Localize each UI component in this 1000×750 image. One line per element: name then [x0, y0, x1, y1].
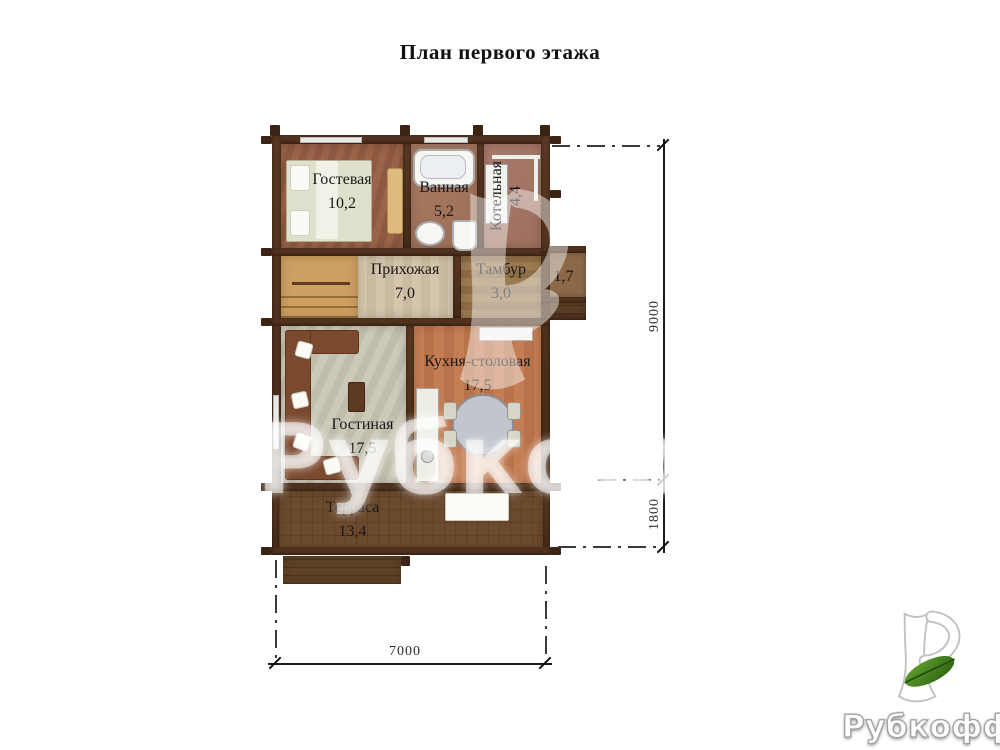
extension-line [552, 145, 660, 147]
extension-line [598, 479, 660, 481]
room-area: 5,2 [411, 202, 477, 221]
room-area: 1,7 [541, 267, 586, 286]
dining-table [452, 394, 514, 456]
floor-plan-page: План первого этажа [0, 0, 1000, 750]
room-name: Тамбур [461, 260, 541, 279]
label-guest: Гостевая 10,2 [281, 170, 403, 213]
company-logo: Рубкофф [842, 610, 1000, 745]
dimension-line-horizontal [268, 663, 552, 665]
window [300, 137, 362, 143]
room-area: 17,5 [414, 376, 541, 395]
dimension-value-1800: 1800 [647, 492, 663, 536]
wall-porch-top [541, 246, 586, 253]
room-name: Гостиная [300, 415, 425, 434]
page-title: План первого этажа [0, 40, 1000, 65]
stair-rail [292, 282, 350, 285]
wall-bath-boiler [477, 144, 484, 248]
dimension-value-9000: 9000 [647, 294, 663, 338]
room-name: Прихожая [350, 260, 460, 279]
room-area: 7,0 [350, 284, 460, 303]
room-name: Кухня-столовая [414, 352, 541, 371]
company-logo-text: Рубкофф [842, 709, 1000, 745]
label-living: Гостиная 17,5 [300, 415, 425, 458]
log-end [540, 125, 550, 136]
label-porch: 1,7 [541, 267, 586, 286]
pillow [290, 210, 310, 236]
dimension-value-7000: 7000 [380, 644, 430, 660]
dimension-line-vertical [663, 139, 665, 553]
room-name: Ванная [411, 178, 477, 197]
wall-right [541, 135, 550, 490]
chair [507, 402, 521, 420]
room-area: 13,4 [290, 522, 415, 541]
label-boiler: Котельная 4,4 [486, 151, 526, 241]
terrace-bench [445, 493, 509, 521]
log-end [261, 483, 272, 491]
label-hallway: Прихожая 7,0 [350, 260, 460, 303]
chair [507, 430, 521, 448]
room-area: 4,4 [506, 186, 525, 206]
pipe [534, 155, 538, 201]
wall-terrace-right [543, 491, 550, 549]
room-area: 17,5 [300, 439, 425, 458]
wall-terrace-bottom [272, 547, 550, 555]
room-name: Терраса [290, 498, 415, 517]
wall-living-kitchen [406, 326, 414, 483]
label-kitchen: Кухня-столовая 17,5 [414, 352, 541, 395]
log-end [550, 547, 561, 555]
wall-porch-mid [541, 297, 586, 303]
sink [415, 221, 445, 246]
toilet [452, 220, 477, 251]
room-name: Гостевая [281, 170, 403, 189]
extension-line [275, 560, 277, 660]
extension-line [545, 566, 547, 660]
log-end [550, 136, 561, 144]
door-mat [479, 327, 533, 341]
window [424, 137, 468, 143]
bathtub-basin [420, 155, 466, 179]
sofa-pillow [291, 391, 310, 410]
wall-guest-bath [403, 144, 411, 248]
wall-porch-bottom [541, 314, 586, 320]
log-end [261, 318, 272, 326]
chair [443, 430, 457, 448]
log-end [261, 136, 272, 144]
label-terrace: Терраса 13,4 [290, 498, 415, 541]
window [273, 395, 279, 449]
label-bathroom: Ванная 5,2 [411, 178, 477, 221]
log-end [400, 125, 410, 136]
stair-treads [281, 288, 358, 318]
terrace-steps [283, 556, 401, 584]
wall-terrace-left [272, 491, 279, 549]
log-end [261, 547, 272, 555]
chair [443, 402, 457, 420]
log-end [261, 248, 272, 256]
log-end [270, 125, 280, 136]
wall-mid-upper [272, 248, 550, 256]
room-area: 3,0 [461, 284, 541, 303]
tv-cabinet [348, 382, 365, 412]
wall-house-bottom [272, 483, 550, 491]
stylized-r-with-leaf-icon [842, 610, 1000, 709]
log-end [550, 483, 561, 491]
label-vestibule: Тамбур 3,0 [461, 260, 541, 303]
sofa-bottom-arm [285, 456, 359, 480]
room-name: Котельная [487, 161, 506, 231]
wall-mid-lower [272, 318, 550, 326]
extension-line [558, 546, 660, 548]
room-area: 10,2 [281, 194, 403, 213]
log-end [401, 556, 410, 566]
log-end [473, 125, 483, 136]
log-end [550, 190, 561, 198]
